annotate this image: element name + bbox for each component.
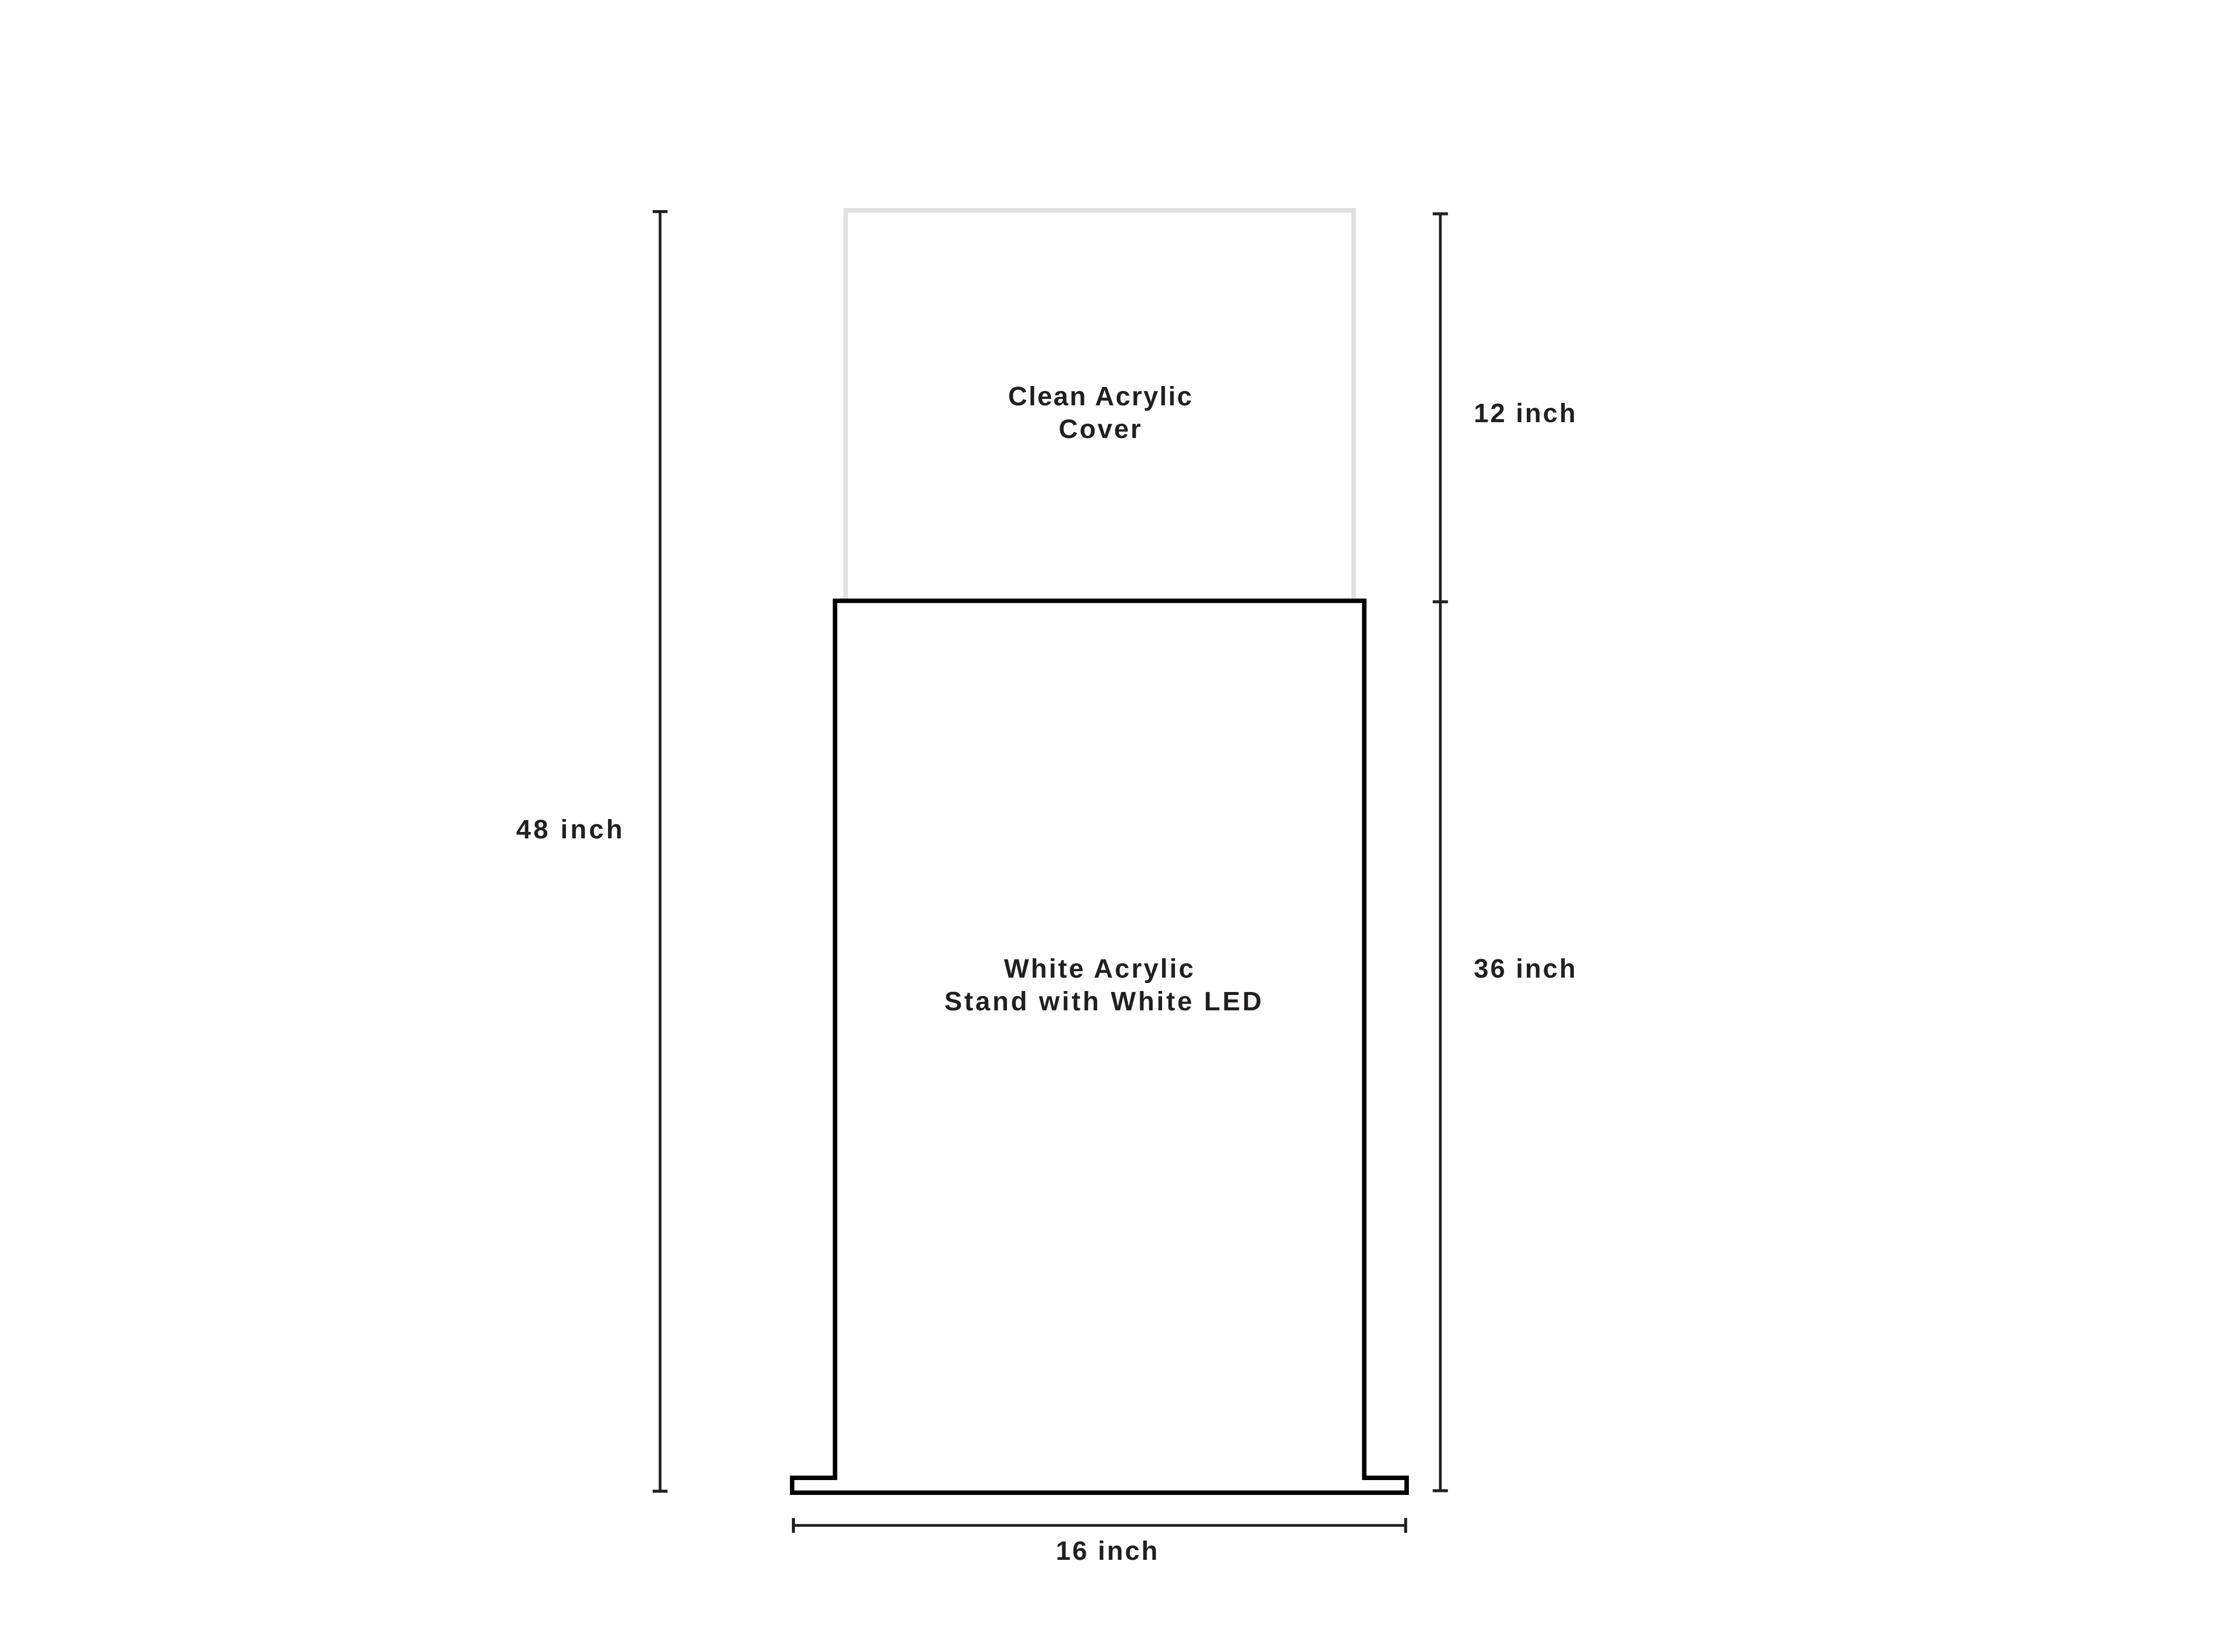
svg-text:Stand with White LED: Stand with White LED (945, 987, 1264, 1016)
svg-text:16 inch: 16 inch (1056, 1537, 1160, 1566)
svg-text:12 inch: 12 inch (1474, 399, 1577, 428)
svg-text:48 inch: 48 inch (516, 815, 625, 844)
svg-text:36 inch: 36 inch (1474, 954, 1577, 984)
svg-text:White Acrylic: White Acrylic (1004, 954, 1195, 984)
svg-text:Cover: Cover (1059, 415, 1142, 444)
svg-text:Clean Acrylic: Clean Acrylic (1008, 382, 1193, 411)
